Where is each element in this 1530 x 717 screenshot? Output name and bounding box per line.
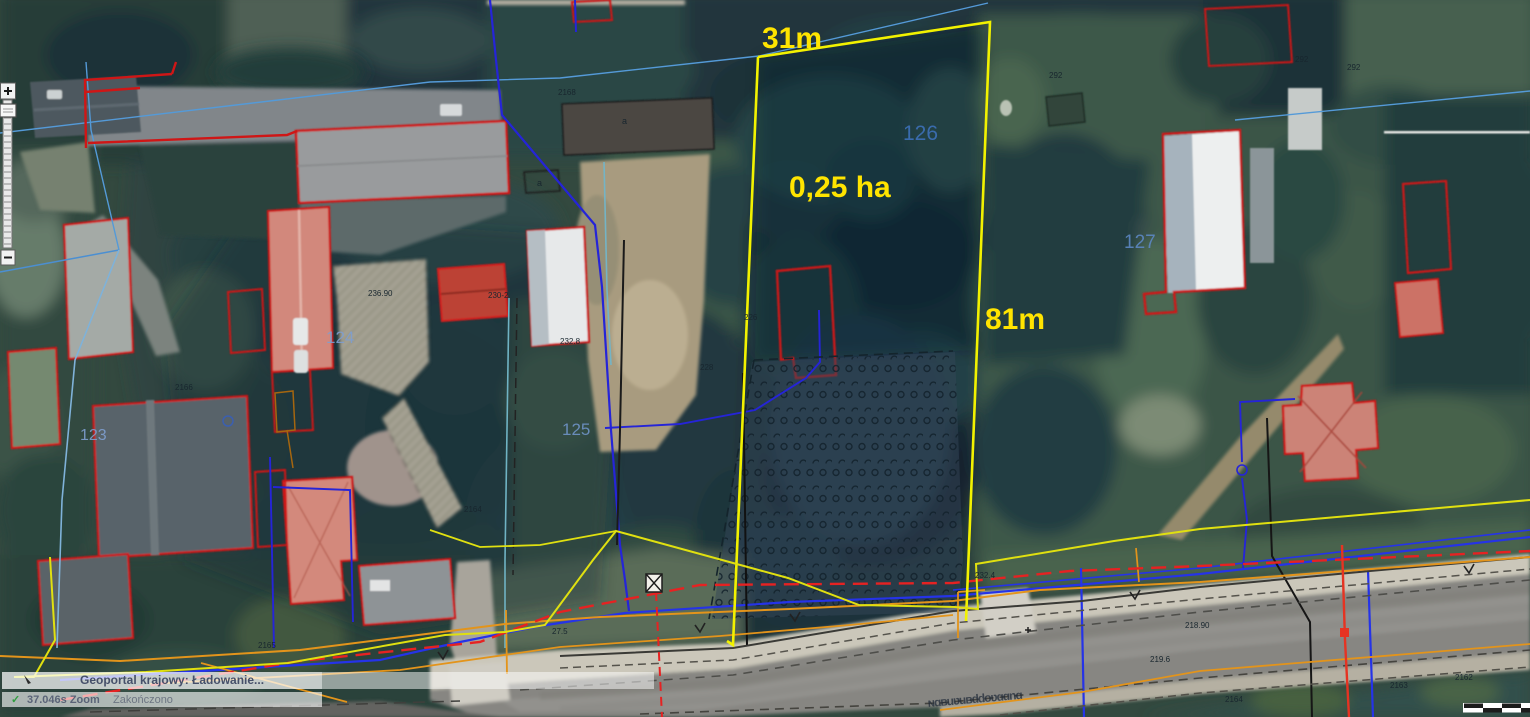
svg-text:218.90: 218.90 bbox=[1185, 621, 1210, 630]
svg-text:292: 292 bbox=[1049, 71, 1063, 80]
svg-text:2168: 2168 bbox=[558, 88, 576, 97]
svg-text:232.8: 232.8 bbox=[560, 337, 581, 346]
svg-text:81m: 81m bbox=[985, 303, 1045, 336]
svg-text:31m: 31m bbox=[762, 22, 822, 55]
svg-text:2166: 2166 bbox=[175, 383, 193, 392]
svg-text:37.046s Zoom: 37.046s Zoom bbox=[27, 694, 100, 706]
svg-text:a: a bbox=[622, 116, 627, 126]
svg-text:2164: 2164 bbox=[1225, 695, 1243, 704]
svg-text:Geoportal krajowy: Ładowanie.: Geoportal krajowy: Ładowanie... bbox=[80, 673, 264, 687]
svg-text:292: 292 bbox=[1295, 55, 1309, 64]
svg-text:126: 126 bbox=[903, 122, 938, 145]
svg-text:292: 292 bbox=[1347, 63, 1361, 72]
svg-text:2164: 2164 bbox=[464, 505, 482, 514]
svg-text:226: 226 bbox=[744, 313, 758, 322]
svg-text:2162: 2162 bbox=[1455, 673, 1473, 682]
svg-text:232.4: 232.4 bbox=[975, 571, 996, 580]
svg-text:2163: 2163 bbox=[1390, 681, 1408, 690]
svg-text:0,25 ha: 0,25 ha bbox=[789, 171, 891, 204]
svg-text:236.90: 236.90 bbox=[368, 289, 393, 298]
svg-text:124: 124 bbox=[326, 328, 354, 347]
svg-text:127: 127 bbox=[1124, 232, 1156, 253]
svg-text:✓: ✓ bbox=[11, 694, 20, 706]
svg-text:230-2: 230-2 bbox=[488, 291, 509, 300]
svg-text:a: a bbox=[537, 178, 542, 188]
svg-text:123: 123 bbox=[80, 427, 107, 444]
svg-text:2165: 2165 bbox=[258, 641, 276, 650]
svg-text:Zakończono: Zakończono bbox=[113, 694, 173, 706]
svg-text:219.6: 219.6 bbox=[1150, 655, 1171, 664]
svg-text:27.5: 27.5 bbox=[552, 627, 568, 636]
svg-text:228: 228 bbox=[700, 363, 714, 372]
svg-text:125: 125 bbox=[562, 420, 590, 439]
